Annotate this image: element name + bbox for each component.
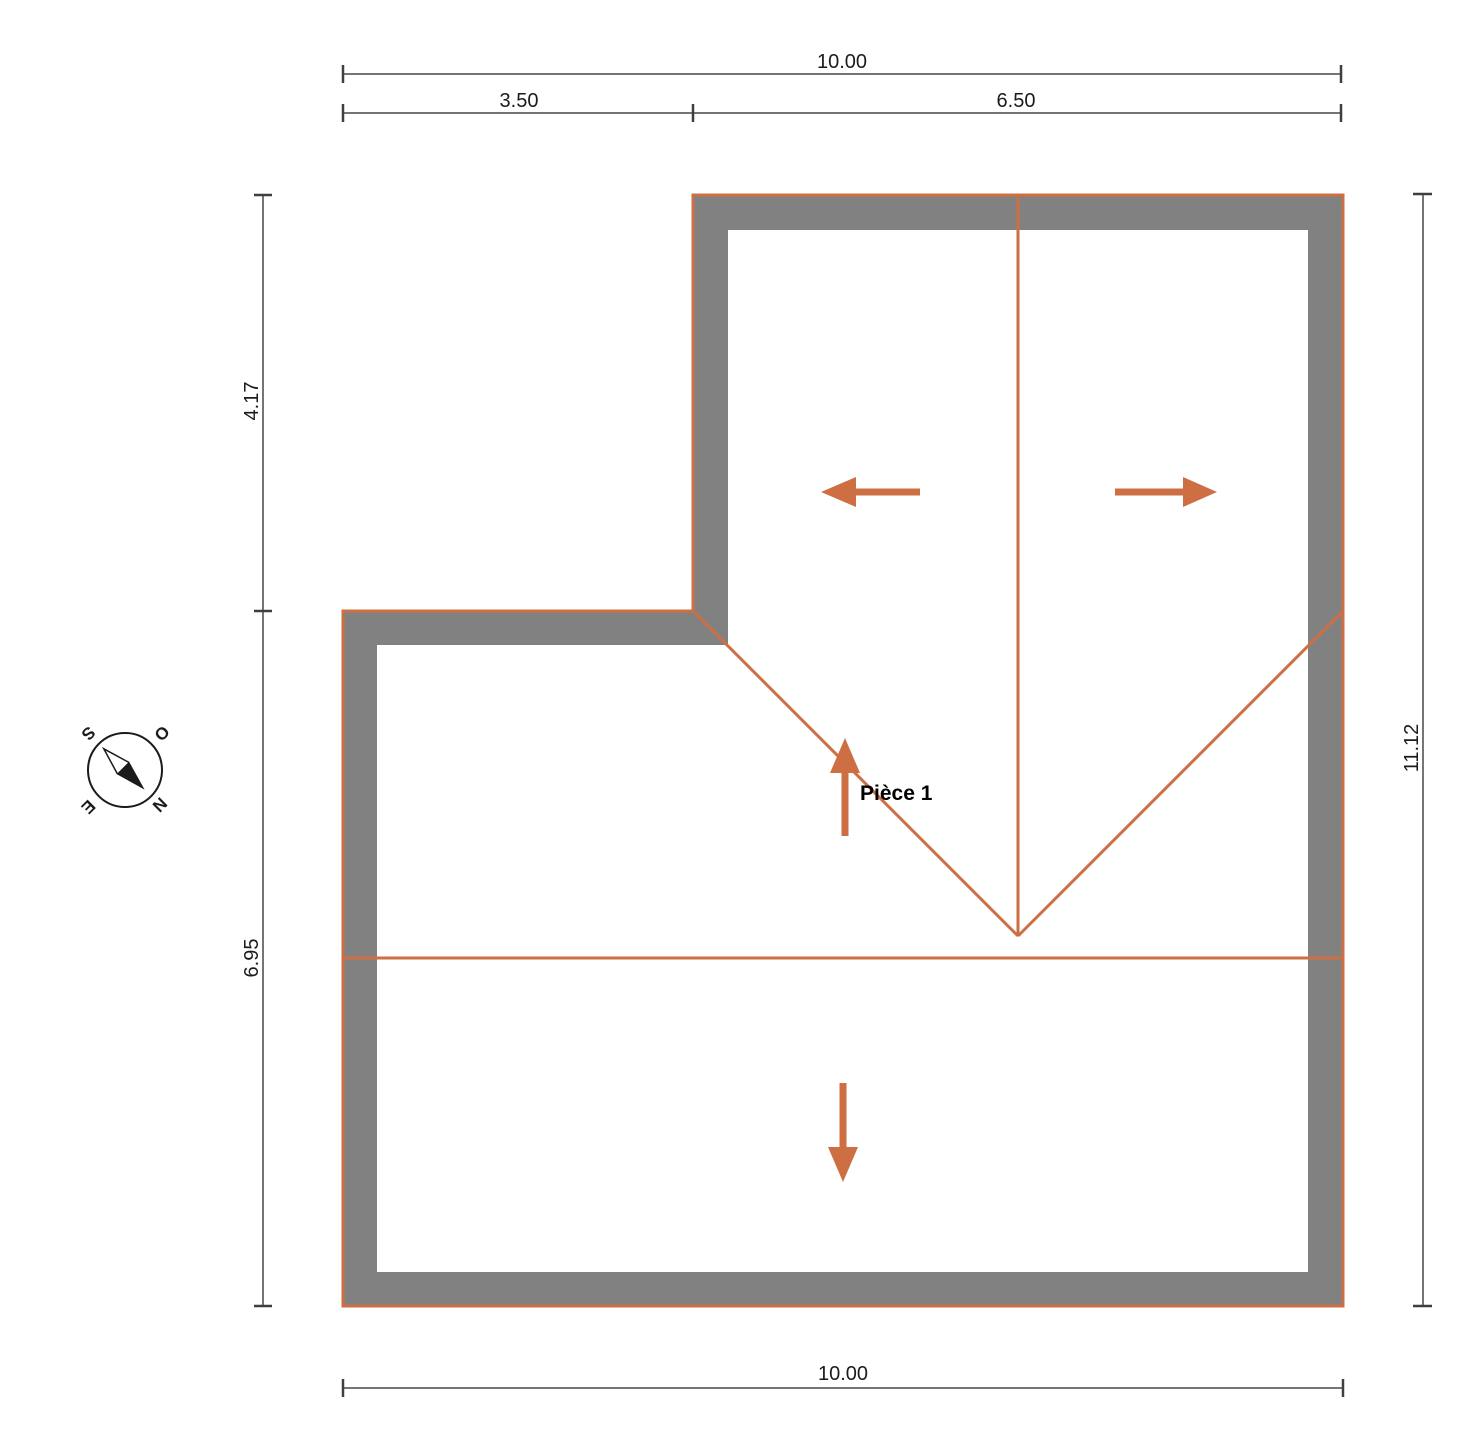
room-label[interactable]: Pièce 1 <box>860 782 933 805</box>
slope-arrow-up-head <box>830 738 860 773</box>
slope-arrow-right[interactable] <box>1115 477 1217 507</box>
dim-label-bottom-total: 10.00 <box>818 1363 868 1385</box>
roof-plan-canvas: Pièce 1 10.00 3.50 6.50 4.17 6.95 11.12 … <box>0 0 1478 1441</box>
roof-hip-line-left[interactable] <box>694 612 1018 936</box>
dim-label-left-lower: 6.95 <box>241 939 263 978</box>
slope-arrow-left[interactable] <box>821 477 920 507</box>
dimension-right: 11.12 <box>1401 194 1432 1306</box>
dim-label-top-right-segment: 6.50 <box>997 90 1036 112</box>
slope-arrow-down[interactable] <box>828 1083 858 1182</box>
dimension-left: 4.17 6.95 <box>241 195 272 1306</box>
slope-arrow-left-head <box>821 477 856 507</box>
dim-label-top-total: 10.00 <box>817 51 867 73</box>
roof-lines[interactable] <box>343 195 1343 958</box>
compass: N S E O <box>41 685 208 852</box>
compass-label-west: O <box>150 722 173 745</box>
dim-label-right-total: 11.12 <box>1401 724 1423 773</box>
compass-label-north: N <box>149 794 171 816</box>
slope-arrow-down-head <box>828 1147 858 1182</box>
compass-label-east: E <box>78 796 99 817</box>
dim-label-left-upper: 4.17 <box>241 382 263 421</box>
dimension-top-total: 10.00 <box>343 51 1341 83</box>
dimension-top-segments: 3.50 6.50 <box>343 90 1341 122</box>
roof-hip-line-right[interactable] <box>1018 612 1342 936</box>
dimension-bottom: 10.00 <box>343 1363 1343 1397</box>
dim-label-top-left-segment: 3.50 <box>500 90 539 112</box>
slope-arrow-right-head <box>1183 477 1217 507</box>
compass-label-south: S <box>78 723 99 744</box>
